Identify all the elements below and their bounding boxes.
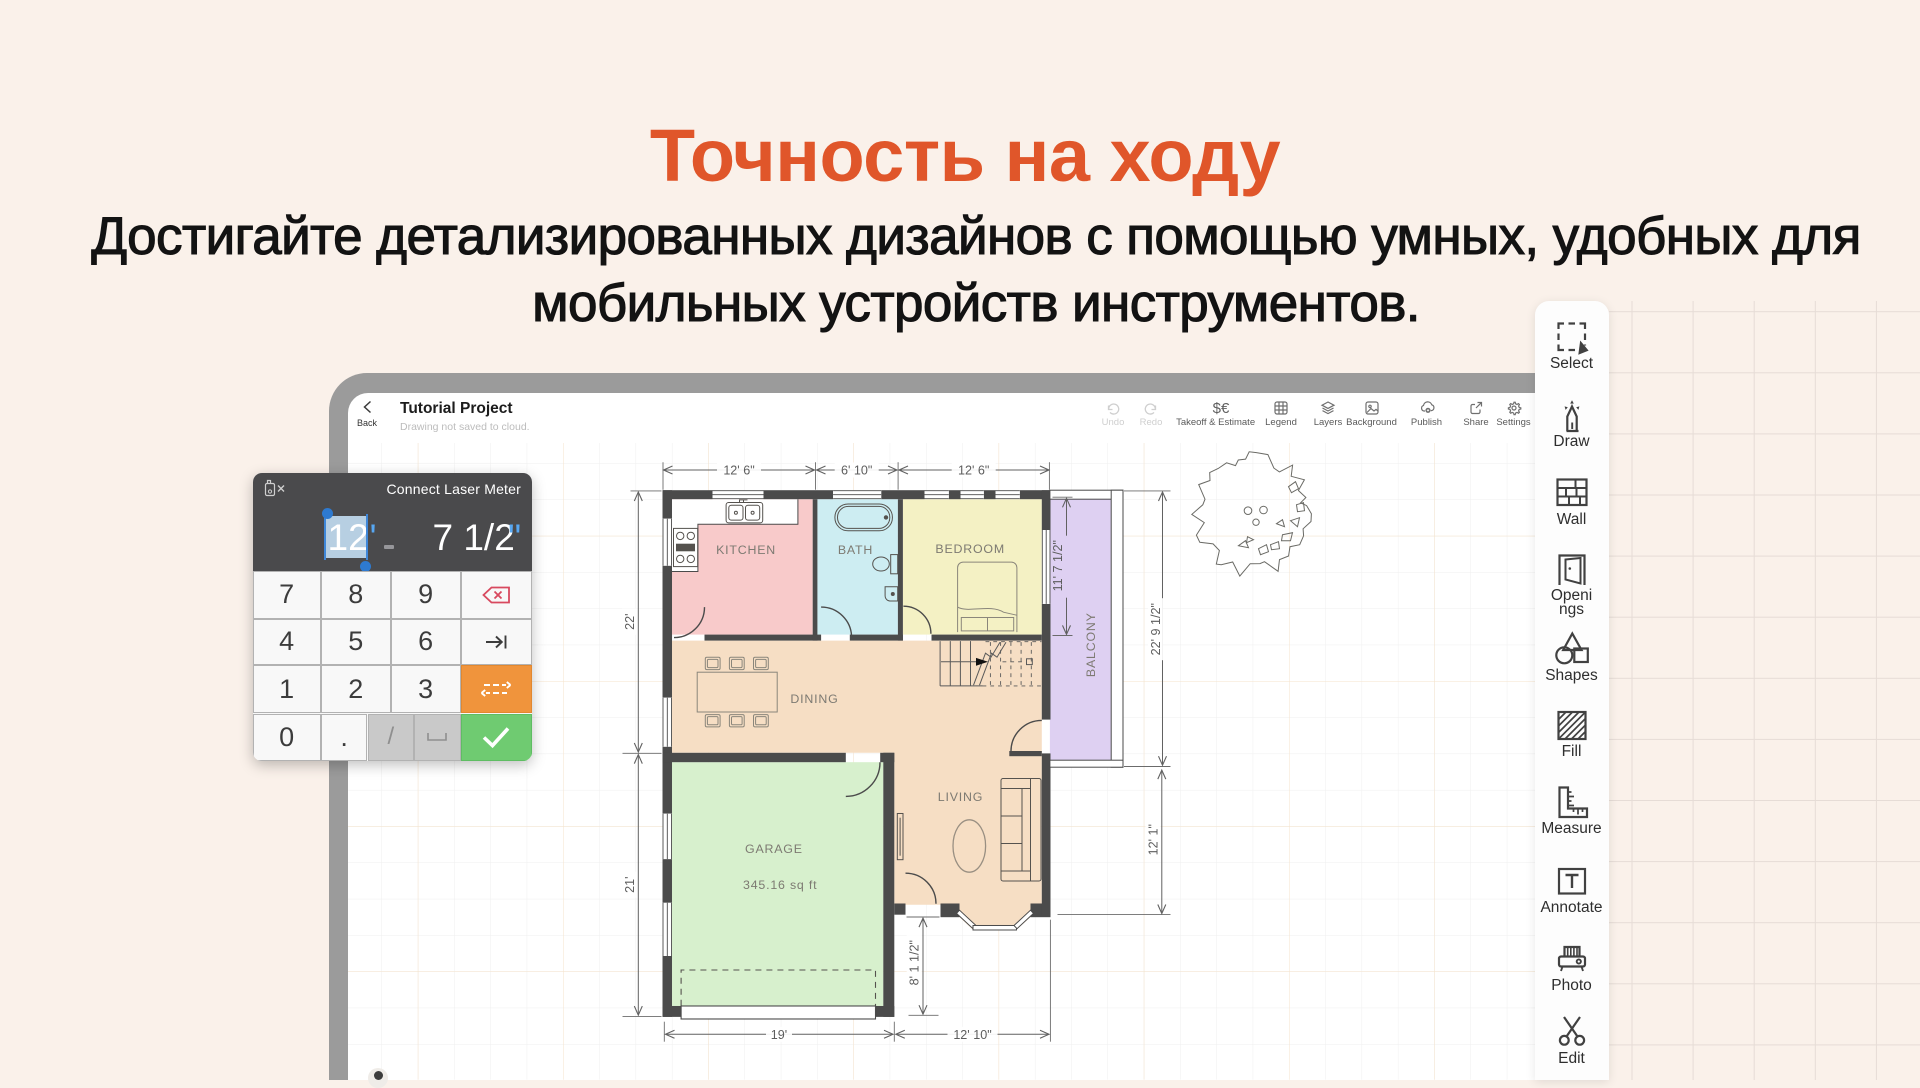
svg-text:12' 6": 12' 6" xyxy=(723,464,754,478)
svg-text:GARAGE: GARAGE xyxy=(745,842,803,856)
svg-text:8' 1 1/2": 8' 1 1/2" xyxy=(907,940,921,985)
svg-text:$€: $€ xyxy=(1212,400,1229,416)
svg-text:19': 19' xyxy=(770,1028,786,1042)
svg-text:12' 6": 12' 6" xyxy=(958,464,989,478)
svg-text:BALCONY: BALCONY xyxy=(1083,613,1097,678)
svg-text:BATH: BATH xyxy=(837,543,872,557)
svg-text:LIVING: LIVING xyxy=(937,790,982,804)
svg-text:12' 1": 12' 1" xyxy=(1146,824,1160,855)
svg-text:BEDROOM: BEDROOM xyxy=(935,542,1005,556)
svg-text:DINING: DINING xyxy=(790,692,838,706)
svg-text:12' 10": 12' 10" xyxy=(953,1028,991,1042)
svg-text:11' 7 1/2": 11' 7 1/2" xyxy=(1051,540,1065,591)
svg-text:6' 10": 6' 10" xyxy=(841,464,872,478)
svg-text:22': 22' xyxy=(623,614,637,630)
svg-text:KITCHEN: KITCHEN xyxy=(716,543,776,557)
svg-text:22' 9 1/2": 22' 9 1/2" xyxy=(1148,603,1162,655)
svg-text:21': 21' xyxy=(623,877,637,893)
svg-text:345.16 sq ft: 345.16 sq ft xyxy=(743,878,817,892)
